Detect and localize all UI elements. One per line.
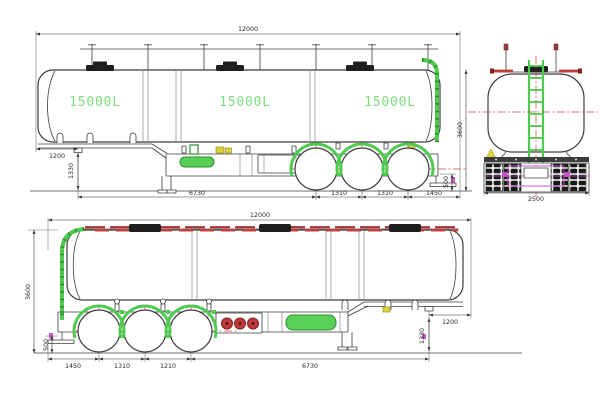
kingpin	[74, 148, 82, 153]
landing-gear	[158, 176, 176, 193]
tank-body: 15000L 15000L 15000L	[38, 62, 440, 143]
clearance-marker-right	[559, 70, 579, 73]
dim-front-overhang: 1200	[442, 319, 458, 326]
clearance-marker-left	[493, 70, 513, 73]
dim-overall-height: 3600	[457, 122, 464, 138]
side-view-top: 15000L 15000L 15000L	[30, 26, 472, 200]
walkway	[83, 224, 459, 232]
rear-view: 2500	[468, 44, 598, 203]
wheel-2	[124, 310, 166, 352]
wheel-2	[341, 148, 383, 190]
landing-gear	[338, 332, 357, 350]
equipment	[216, 313, 336, 333]
air-tank	[286, 315, 336, 330]
kingpin	[425, 307, 433, 312]
dim-axle-spacing-1: 1310	[114, 363, 130, 370]
dual-tire-left-outer	[486, 164, 503, 191]
dim-overall-length: 12000	[238, 26, 258, 33]
dim-rear-overhang: 1450	[426, 190, 442, 197]
dim-rear-clearance: 500	[43, 339, 50, 351]
three-view-drawing: 15000L 15000L 15000L	[0, 0, 600, 400]
dual-tire-right-outer	[569, 164, 586, 191]
compartment-label-3: 15000L	[364, 95, 416, 110]
rear-suspension	[484, 149, 589, 192]
dim-front-overhang: 1200	[49, 153, 65, 160]
dual-tire-left-inner	[504, 164, 521, 191]
dim-kingpin-height: 1330	[419, 328, 426, 344]
dim-axle-spacing-2: 1210	[160, 363, 176, 370]
hose-bracket	[190, 145, 198, 154]
air-tank	[180, 157, 214, 167]
dual-tire-right-inner	[551, 164, 568, 191]
dim-axle-spacing-2: 1310	[377, 190, 393, 197]
accessory-yellow	[383, 307, 390, 312]
dim-kingpin-to-axle: 6730	[189, 190, 205, 197]
dim-axle-spacing-1: 1310	[331, 190, 347, 197]
compartment-label-2: 15000L	[219, 95, 271, 110]
technical-drawing-canvas: 15000L 15000L 15000L	[0, 0, 600, 400]
dim-overall-width: 2500	[528, 196, 544, 203]
dim-kingpin-height: 1330	[68, 163, 75, 179]
tank-body	[67, 230, 463, 300]
dim-rear-clearance: 500	[443, 176, 450, 188]
dim-overall-length: 12000	[250, 212, 270, 219]
wheel-3	[387, 148, 429, 190]
wheel-1	[78, 310, 120, 352]
hose-couplings	[222, 318, 259, 329]
compartment-label-1: 15000L	[69, 95, 121, 110]
handrail	[80, 44, 438, 70]
accessory-yellow-2	[226, 148, 232, 153]
dim-rear-overhang: 1450	[65, 363, 81, 370]
wheel-3	[170, 310, 212, 352]
wheel-1	[295, 148, 337, 190]
rear-marker-light	[451, 177, 455, 183]
side-view-bottom: 12000 3600 500 1450 1310 1210 6730 1200 …	[25, 212, 522, 370]
dim-overall-height: 3600	[25, 284, 32, 300]
wheel-chock-yellow	[486, 149, 496, 158]
accessory-yellow-1	[216, 147, 224, 153]
dim-axle-to-kingpin: 6730	[302, 363, 318, 370]
